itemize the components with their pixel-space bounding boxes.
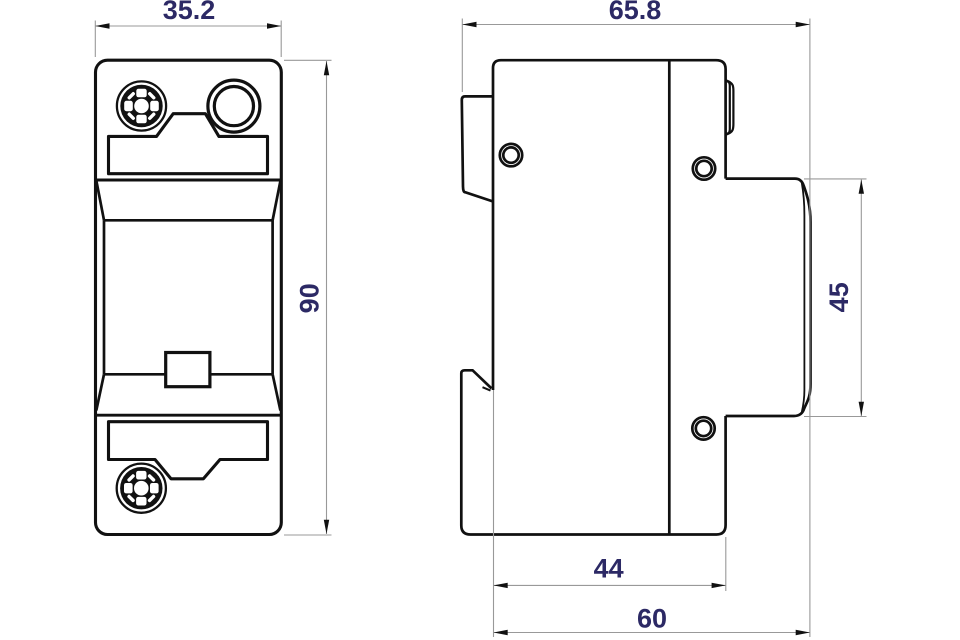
svg-text:90: 90 bbox=[295, 283, 325, 313]
svg-text:35.2: 35.2 bbox=[163, 0, 216, 25]
svg-text:45: 45 bbox=[824, 282, 854, 312]
svg-text:44: 44 bbox=[594, 554, 624, 584]
svg-text:60: 60 bbox=[637, 603, 667, 633]
svg-text:65.8: 65.8 bbox=[609, 0, 662, 25]
